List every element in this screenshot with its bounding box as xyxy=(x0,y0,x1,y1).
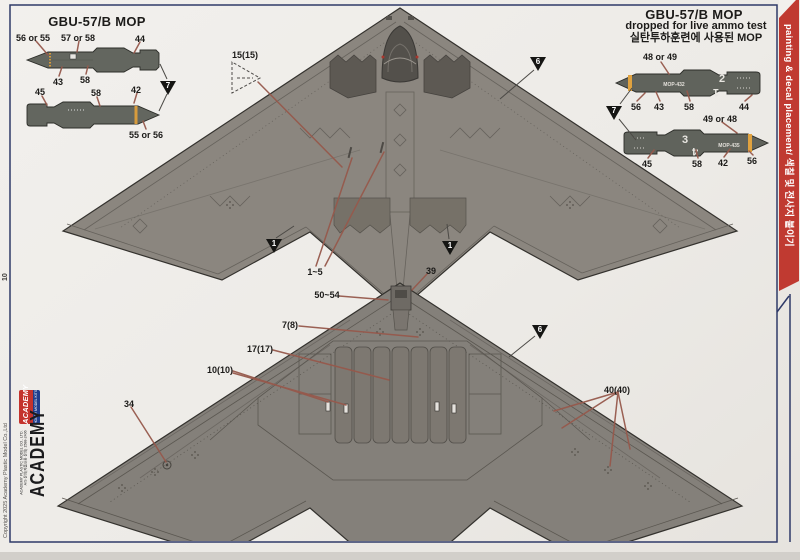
marker-number: 7 xyxy=(166,81,170,90)
callout-r58: 58 xyxy=(684,103,694,112)
callout-r45: 45 xyxy=(642,160,652,169)
callout-r44: 44 xyxy=(739,103,749,112)
sheet-artwork: MOP-432 2 1 MOP-435 3 4 xyxy=(0,0,800,560)
callout-55-or-56: 55 or 56 xyxy=(129,131,163,140)
callout-r56b: 56 xyxy=(747,157,757,166)
left-diagram-title: GBU-57/B MOP xyxy=(48,15,146,28)
callout-58: 58 xyxy=(80,76,90,85)
marker-number: 7 xyxy=(612,106,616,115)
callout-40-40: 40(40) xyxy=(604,386,630,395)
callout-49-or-48: 49 or 48 xyxy=(703,115,737,124)
callout-r58b: 58 xyxy=(692,160,702,169)
callout-17-17: 17(17) xyxy=(247,345,273,354)
callout-r56: 56 xyxy=(631,103,641,112)
academy-wordmark-block: ACADEMY PLASTIC MODEL CO., LTD. A/S 문의(제… xyxy=(20,423,46,497)
callout-45: 45 xyxy=(35,88,45,97)
callout-50-54: 50~54 xyxy=(314,291,339,300)
marker-number: 1 xyxy=(272,239,276,248)
callout-39: 39 xyxy=(426,267,436,276)
callout-56-or-55: 56 or 55 xyxy=(16,34,50,43)
callout-r42: 42 xyxy=(718,159,728,168)
side-tab-label: painting & decal placement/ 색칠 및 전사지 붙이기 xyxy=(780,24,796,288)
callout-48-or-49: 48 or 49 xyxy=(643,53,677,62)
copyright-text: Copyright 2025 Academy Plastic Model Co.… xyxy=(3,426,11,538)
callout-42: 42 xyxy=(131,86,141,95)
marker-number: 1 xyxy=(448,241,452,250)
bomb-stencil-mop432: MOP-432 xyxy=(663,82,685,88)
bomb-digit-3: 3 xyxy=(682,134,688,146)
bomb-digit-1: 1 xyxy=(713,86,719,98)
photo-edge-shadow xyxy=(0,552,800,560)
callout-34: 34 xyxy=(124,400,134,409)
aircraft-bottom-view xyxy=(58,283,742,560)
marker-number: 6 xyxy=(536,57,540,66)
aircraft-top-view xyxy=(63,8,737,310)
callout-7-8: 7(8) xyxy=(282,321,298,330)
callout-15-15: 15(15) xyxy=(232,51,258,60)
callout-r43: 43 xyxy=(654,103,664,112)
bomb-digit-2: 2 xyxy=(719,73,725,85)
marker-number: 6 xyxy=(538,325,542,334)
right-diagram-subtitle: dropped for live ammo test xyxy=(625,21,766,32)
callout-43: 43 xyxy=(53,78,63,87)
right-diagram-subtitle-kr: 실탄투하훈련에 사용된 MOP xyxy=(630,33,762,44)
callout-10-10: 10(10) xyxy=(207,366,233,375)
bomb-stencil-mop435: MOP-435 xyxy=(718,143,740,149)
academy-wordmark: ACADEMY xyxy=(29,423,49,497)
callout-58b: 58 xyxy=(91,89,101,98)
instruction-sheet-page: MOP-432 2 1 MOP-435 3 4 xyxy=(0,0,800,560)
decal-15-icon xyxy=(232,62,260,93)
bomb-diagram-right: MOP-432 2 1 MOP-435 3 4 xyxy=(616,70,768,157)
callout-44: 44 xyxy=(135,35,145,44)
callout-1-5: 1~5 xyxy=(307,268,322,277)
callout-57-or-58: 57 or 58 xyxy=(61,34,95,43)
page-number: 10 xyxy=(2,265,12,281)
